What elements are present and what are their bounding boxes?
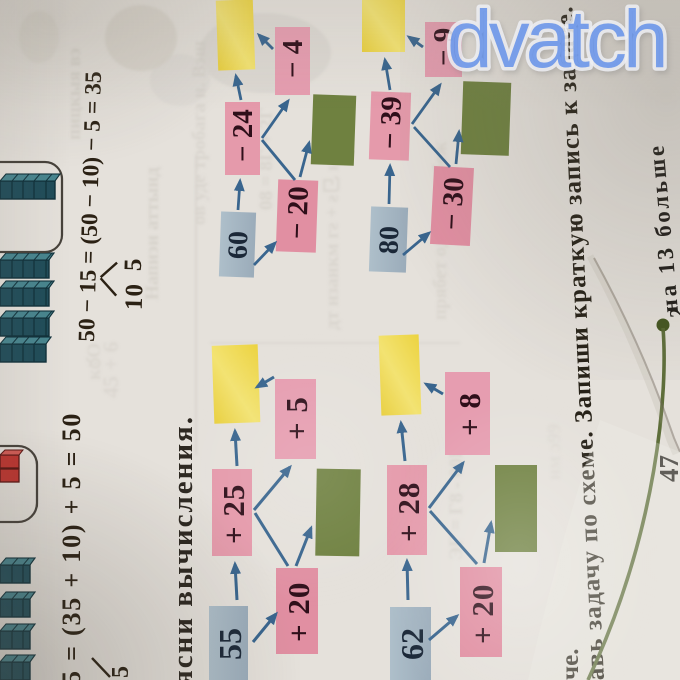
svg-text:dvatch: dvatch <box>447 0 665 85</box>
